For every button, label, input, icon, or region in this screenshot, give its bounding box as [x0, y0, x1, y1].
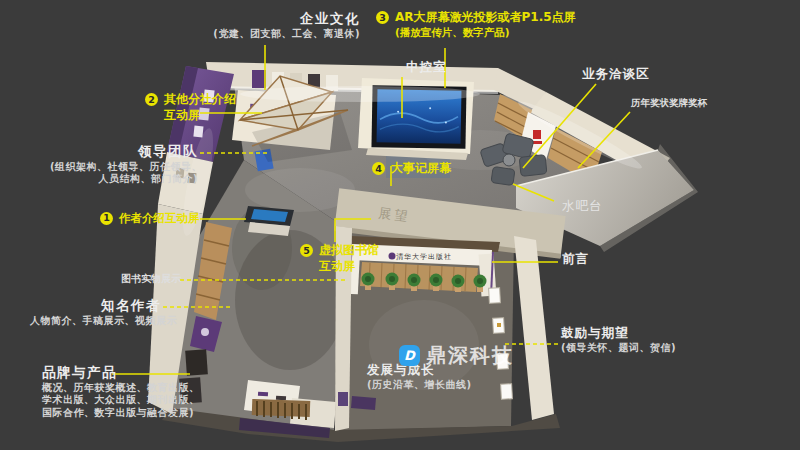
label-corporate-culture: 企业文化 (党建、团支部、工会、离退休) — [190, 10, 360, 40]
label-foreword: 前言 — [562, 251, 589, 267]
entrance-sign-text: 清华大学出版社 — [396, 253, 452, 261]
label-branch-screen: 2 其他分社介绍 互动屏 — [145, 92, 236, 123]
label-memorabilia-screen: 4 大事记屏幕 — [372, 161, 451, 177]
label-leadership: 领导团队 (组织架构、社领导、历任领导、 人员结构、部门简介) — [50, 143, 198, 186]
label-brands-products: 品牌与产品 概况、历年获奖概述、教育出版、 学术出版、大众出版、期刊出版、 国际… — [42, 364, 200, 419]
marker-5: 5 — [300, 244, 313, 257]
label-author-screen: 1 作者介绍互动屏 — [100, 211, 200, 226]
marker-2: 2 — [145, 93, 158, 106]
watermark-brand: 鼎深科技 — [426, 342, 514, 369]
label-ar-screen-title: AR大屏幕激光投影或者P1.5点屏 — [395, 10, 576, 26]
marker-4: 4 — [372, 162, 385, 175]
label-business-area: 业务洽谈区 — [582, 66, 650, 82]
label-awards: 历年奖状奖牌奖杯 — [631, 97, 707, 109]
label-branch-screen-line1: 其他分社介绍 — [164, 92, 236, 108]
label-ar-screen-sub: (播放宣传片、数字产品) — [395, 26, 576, 40]
exhibition-plan-screenshot: 展望 清华大学出版社 — [0, 0, 800, 450]
label-encouragement: 鼓励与期望 (领导关怀、题词、贺信) — [561, 325, 676, 354]
label-control-room: 中控室 — [406, 59, 447, 75]
label-virtual-library: 5 虚拟图书馆 互动屏 — [300, 243, 379, 274]
label-corporate-culture-title: 企业文化 — [190, 10, 360, 27]
label-water-bar: 水吧台 — [562, 198, 603, 214]
author-screen-table — [244, 206, 294, 236]
watermark-logo-icon: D — [399, 345, 420, 366]
marker-3: 3 — [376, 11, 389, 24]
label-ar-screen: 3 AR大屏幕激光投影或者P1.5点屏 (播放宣传片、数字产品) — [376, 10, 576, 39]
label-book-display: 图书实物展示 — [121, 273, 181, 286]
label-famous-authors: 知名作者 人物简介、手稿展示、视频展示 — [30, 297, 161, 327]
label-corporate-culture-sub: (党建、团支部、工会、离退休) — [190, 28, 360, 41]
watermark: D 鼎深科技 — [399, 342, 514, 369]
marker-1: 1 — [100, 212, 113, 225]
label-branch-screen-line2: 互动屏 — [164, 108, 236, 124]
